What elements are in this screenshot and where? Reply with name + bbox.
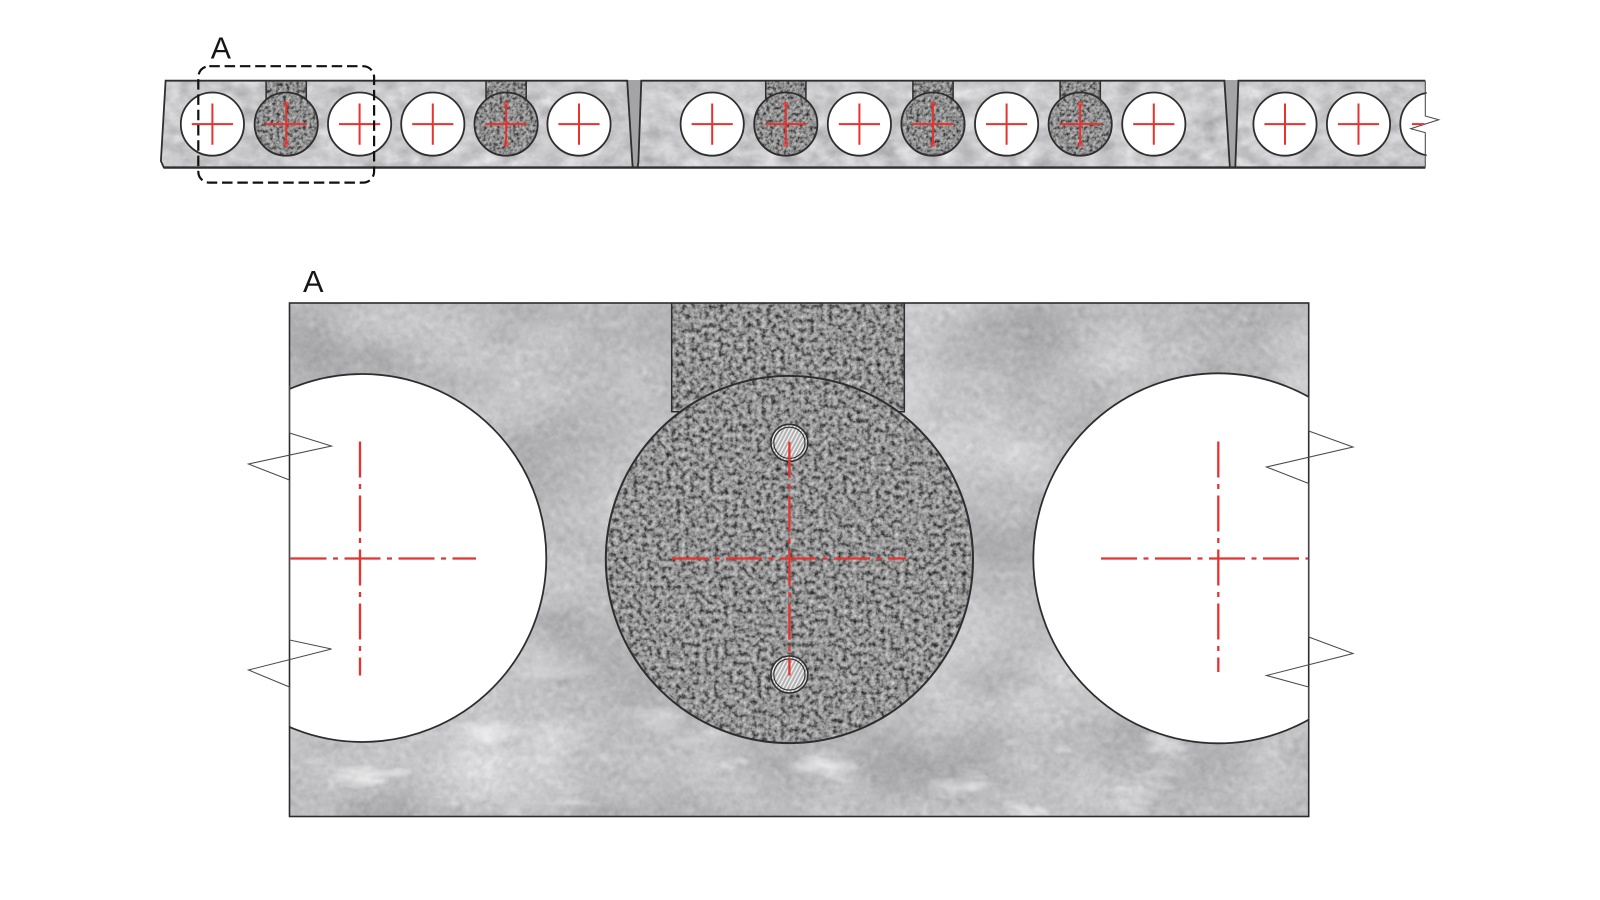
svg-text:A: A (211, 32, 232, 65)
svg-text:A: A (303, 264, 324, 299)
